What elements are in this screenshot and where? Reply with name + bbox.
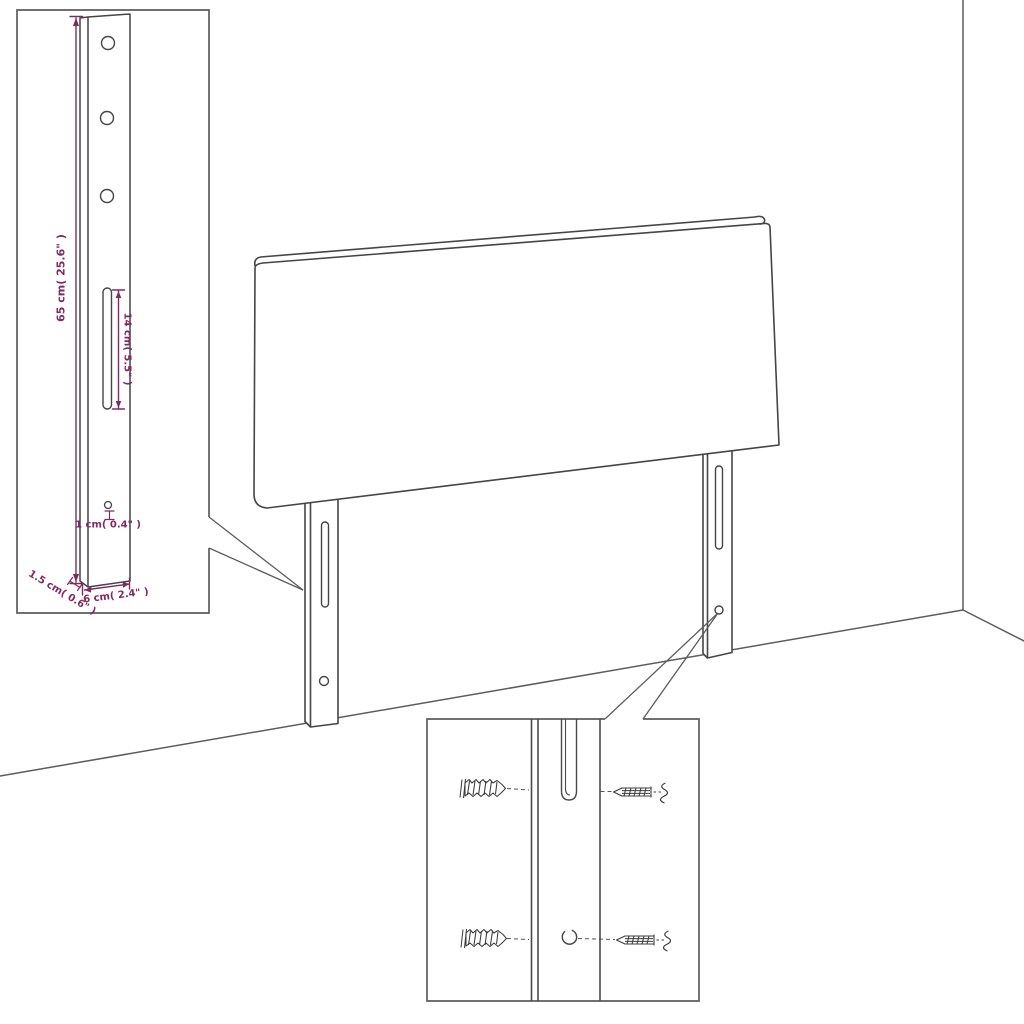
floor-line-right	[963, 610, 1024, 641]
diagram-line-art	[0, 0, 1024, 1024]
right-leg-slot	[716, 466, 723, 549]
bracket-small-hole	[105, 502, 112, 509]
hardware-detail-inset	[427, 719, 699, 1001]
bracket-hole	[101, 190, 114, 203]
panel-front-face	[254, 223, 779, 508]
bracket-slot	[103, 288, 112, 409]
callout-line	[209, 517, 303, 590]
right-leg-hole	[715, 606, 723, 614]
leg-hole-enlarged	[562, 930, 576, 944]
dimension-label-hole-diameter: 1 cm( 0.4" )	[75, 520, 141, 531]
callout-line	[643, 613, 718, 719]
bracket-hole	[102, 37, 115, 50]
bracket-hole	[101, 112, 114, 125]
assembly-diagram: 65 cm( 25.6" ) 14 cm( 5.5" ) 1 cm( 0.4" …	[0, 0, 1024, 1024]
dimension-label-height: 65 cm( 25.6" )	[55, 234, 68, 322]
inset-background	[427, 719, 699, 1001]
left-leg-hole	[320, 677, 329, 686]
callout-wedge-left	[209, 517, 303, 590]
headboard-left-leg	[305, 486, 338, 727]
headboard-right-leg	[703, 436, 732, 658]
dimension-label-slot-length: 14 cm( 5.5" )	[122, 313, 133, 386]
callout-line	[605, 613, 718, 719]
headboard-panel	[254, 216, 779, 508]
left-leg-slot	[322, 522, 329, 607]
callout-wedge-right	[605, 613, 718, 719]
bracket-outline	[80, 14, 130, 587]
